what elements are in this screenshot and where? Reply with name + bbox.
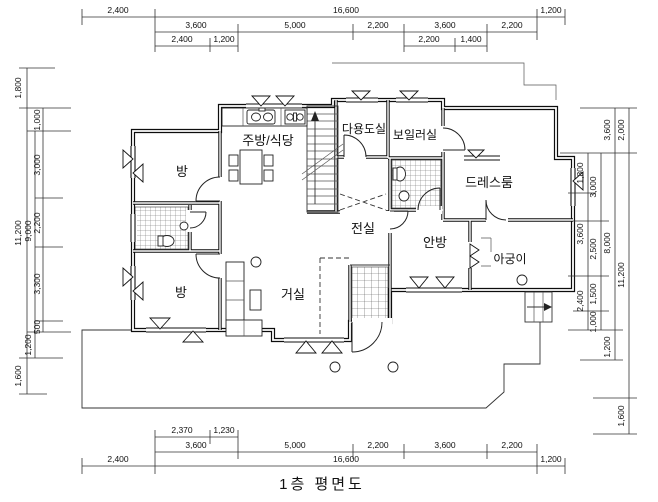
floor-plan-page: 2,400 16,600 1,200 3,600 5,000 2,200 3,6… — [0, 0, 658, 502]
dim-label: 1,200 — [602, 336, 612, 358]
dim-label: 3,600 — [434, 20, 456, 30]
drawing-title: 1층 평면도 — [279, 476, 365, 493]
dim-label: 1,200 — [540, 454, 562, 464]
dim-label: 3,600 — [602, 119, 612, 141]
window-icon — [284, 336, 344, 353]
dim-label: 1,230 — [213, 425, 235, 435]
room-label-room-bottom: 방 — [175, 285, 187, 300]
dim-label: 1,600 — [616, 405, 626, 427]
room-label-living: 거실 — [281, 287, 305, 302]
toilet-icon — [393, 167, 406, 181]
dim-label: 5,000 — [284, 20, 306, 30]
dim-label: 2,370 — [171, 425, 193, 435]
dim-label: 3,600 — [575, 223, 585, 245]
toilet-icon — [158, 236, 174, 247]
room-label-kitchen: 주방/식당 — [242, 133, 293, 148]
room-label-agungi: 아궁이 — [493, 252, 526, 266]
dim-label: 1,500 — [588, 283, 598, 305]
window-icon — [129, 214, 137, 242]
dim-label: 2,400 — [107, 454, 129, 464]
dim-label: 2,200 — [418, 34, 440, 44]
dim-label: 2,200 — [367, 440, 389, 450]
dim-label: 16,600 — [333, 454, 359, 464]
room-label-boiler: 보일러실 — [393, 128, 437, 142]
dim-label: 3,000 — [32, 154, 42, 176]
dim-label: 11,200 — [616, 262, 626, 288]
dim-label: 1,600 — [13, 365, 23, 387]
dim-label: 16,600 — [333, 5, 359, 15]
window-icon — [123, 146, 143, 182]
dim-label: 3,600 — [185, 440, 207, 450]
window-icon — [406, 277, 462, 294]
dimensions-top: 2,400 16,600 1,200 3,600 5,000 2,200 3,6… — [82, 5, 565, 52]
dim-label: 1,800 — [575, 162, 585, 184]
dim-label: 2,500 — [588, 238, 598, 260]
dim-label: 11,200 — [13, 220, 23, 246]
column-icon — [330, 362, 340, 372]
dim-label: 1,200 — [213, 34, 235, 44]
dim-label: 3,600 — [434, 440, 456, 450]
deck-outline — [82, 322, 540, 408]
room-label-master: 안방 — [423, 235, 447, 250]
floor-plan-canvas: 2,400 16,600 1,200 3,600 5,000 2,200 3,6… — [0, 0, 658, 502]
window-icon — [123, 266, 143, 300]
window-icon — [346, 91, 378, 104]
room-label-room-top: 방 — [176, 164, 188, 179]
dim-label: 1,200 — [23, 334, 33, 356]
dim-label: 1,000 — [588, 311, 598, 333]
dim-label: 3,300 — [32, 273, 42, 295]
dim-label: 2,200 — [501, 440, 523, 450]
dim-label: 3,600 — [185, 20, 207, 30]
sofa-icon — [226, 257, 262, 336]
dim-label: 1,400 — [460, 34, 482, 44]
dim-label: 1,800 — [13, 77, 23, 99]
dim-label: 2,200 — [367, 20, 389, 30]
dim-label: 500 — [32, 320, 42, 334]
dim-label: 2,200 — [32, 212, 42, 234]
dining-set-icon — [229, 150, 273, 184]
dim-label: 1,200 — [540, 5, 562, 15]
dimensions-bottom: 2,370 1,230 3,600 5,000 2,200 3,600 2,20… — [82, 425, 565, 474]
sink-icon — [399, 191, 409, 201]
window-icon — [146, 318, 206, 342]
room-label-vestibule: 전실 — [351, 221, 375, 236]
dim-label: 2,400 — [107, 5, 129, 15]
dimensions-left: 1,800 11,200 1,600 9,000 1,200 1,000 3,0… — [13, 68, 71, 394]
dim-label: 8,000 — [602, 232, 612, 254]
column-icon — [517, 275, 527, 285]
column-icon — [388, 362, 398, 372]
dim-label: 3,000 — [588, 176, 598, 198]
dim-label: 2,000 — [616, 119, 626, 141]
sink-icon — [180, 222, 188, 230]
dim-label: 1,000 — [32, 109, 42, 131]
dim-label: 2,400 — [575, 290, 585, 312]
exterior-steps-icon — [525, 292, 552, 322]
window-icon — [464, 150, 500, 162]
dim-label: 5,000 — [284, 440, 306, 450]
dim-label: 2,400 — [171, 34, 193, 44]
kitchen-counter-icon — [222, 108, 307, 126]
dim-label: 2,200 — [501, 20, 523, 30]
window-icon — [396, 91, 428, 104]
door-arc-icon — [352, 322, 382, 352]
room-label-dressroom: 드레스룸 — [465, 175, 513, 190]
room-label-utility: 다용도실 — [342, 122, 386, 136]
